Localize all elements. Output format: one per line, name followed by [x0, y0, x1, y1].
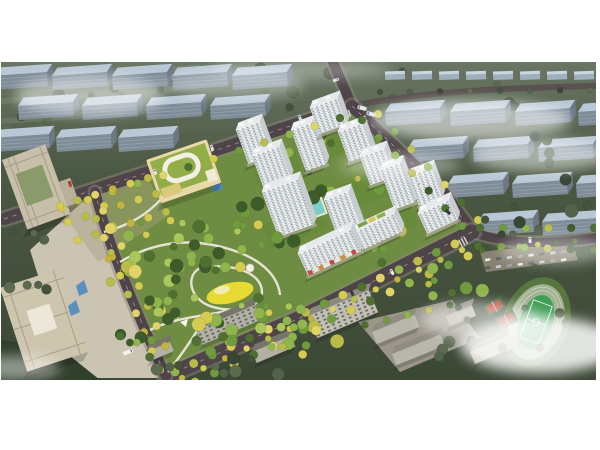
park-tree [297, 319, 307, 329]
context-house [466, 71, 486, 80]
street-tree [339, 291, 348, 300]
park-tree [287, 234, 300, 247]
park-tree [227, 335, 238, 346]
context-tree [151, 363, 163, 375]
park-tree [153, 307, 163, 317]
street-tree [265, 335, 271, 341]
context-building [55, 126, 117, 152]
street-tree [118, 242, 126, 250]
street-tree [362, 322, 369, 329]
park-tree [129, 251, 141, 263]
street-tree [179, 375, 185, 381]
street-tree [330, 306, 336, 312]
park-tree [212, 266, 220, 274]
context-tree [444, 336, 456, 348]
street-tree [92, 230, 100, 238]
park-tree [105, 223, 116, 234]
context-tree [166, 363, 175, 372]
street-tree [386, 288, 395, 297]
street-tree [432, 248, 441, 257]
park-tree [174, 233, 185, 244]
street-tree [395, 265, 404, 274]
context-house [574, 71, 594, 80]
street-tree [416, 267, 422, 273]
street-tree [84, 196, 92, 204]
street-tree [159, 171, 167, 179]
context-building [447, 172, 509, 198]
context-tree [534, 225, 543, 234]
park-tree [254, 308, 265, 319]
context-tree [211, 362, 219, 370]
street-tree [134, 180, 142, 188]
park-tree [145, 353, 154, 362]
context-tree [247, 356, 255, 364]
context-tree [31, 230, 38, 237]
street-tree [126, 180, 134, 188]
park-tree [285, 303, 292, 310]
park-tree [170, 259, 184, 273]
street-tree [405, 279, 414, 288]
master-plan-rendering [0, 0, 600, 450]
park-tree [378, 258, 387, 267]
street-tree [144, 174, 152, 182]
park-tree [263, 303, 270, 310]
context-house [412, 71, 432, 80]
park-tree [431, 277, 438, 284]
street-tree [74, 236, 82, 244]
park-tree [108, 249, 115, 256]
street-tree [351, 296, 357, 302]
street-tree [134, 196, 142, 204]
context-building [117, 126, 179, 152]
context-tree [555, 308, 565, 318]
park-tree [116, 332, 124, 340]
park-tree [218, 332, 227, 341]
street-tree [377, 89, 383, 95]
park-tree [116, 272, 124, 280]
street-tree [458, 222, 466, 230]
street-tree [413, 257, 422, 266]
park-tree [191, 294, 199, 302]
street-tree [56, 202, 64, 210]
park-tree [163, 297, 172, 306]
park-tree [137, 219, 144, 226]
street-tree [127, 219, 135, 227]
park-tree [129, 265, 142, 278]
context-tree [41, 284, 51, 294]
context-house [520, 71, 540, 80]
street-tree [451, 240, 460, 249]
street-tree [260, 139, 268, 147]
park-tree [268, 343, 276, 351]
context-tree [174, 361, 183, 370]
street-tree [567, 224, 575, 232]
park-tree [200, 256, 212, 268]
street-tree [441, 181, 449, 189]
street-tree [373, 286, 379, 292]
park-tree [427, 263, 438, 274]
street-tree [479, 247, 485, 253]
fog-cloud [210, 60, 390, 80]
context-house [493, 71, 513, 80]
context-tree [583, 201, 592, 210]
park-tree [170, 243, 177, 250]
park-tree [205, 346, 216, 357]
park-tree [105, 256, 112, 263]
street-tree [64, 218, 72, 226]
context-tree [509, 230, 516, 237]
street-tree [366, 297, 375, 306]
street-tree [394, 276, 400, 282]
street-tree [144, 214, 152, 222]
context-tree [565, 204, 579, 218]
park-tree [232, 220, 241, 229]
street-tree [376, 274, 385, 283]
street-tree [243, 345, 249, 351]
context-tree [272, 368, 285, 381]
context-house [385, 71, 405, 80]
context-house [547, 71, 567, 80]
street-tree [437, 257, 443, 263]
street-tree [357, 282, 366, 291]
park-tree [235, 262, 245, 272]
park-tree [279, 343, 286, 350]
park-tree [254, 220, 263, 229]
park-tree [277, 323, 286, 332]
park-tree [144, 296, 154, 306]
street-tree [587, 87, 593, 93]
street-tree [590, 224, 598, 232]
park-tree [133, 339, 140, 346]
context-building [0, 126, 56, 152]
street-tree [74, 196, 82, 204]
street-tree [286, 130, 294, 138]
context-tree [481, 216, 489, 224]
street-tree [375, 134, 383, 142]
park-tree [258, 241, 266, 249]
park-tree [192, 336, 202, 346]
context-side [596, 210, 600, 232]
park-tree [187, 251, 197, 261]
street-tree [358, 116, 366, 124]
context-tree [511, 203, 517, 209]
context-tree [498, 231, 506, 239]
context-tree [11, 229, 18, 236]
park-tree [123, 230, 134, 241]
fog-cloud [15, 75, 165, 115]
context-tree [220, 369, 229, 378]
park-tree [106, 277, 115, 286]
park-tree [144, 251, 155, 262]
context-tree [514, 216, 526, 228]
park-tree [126, 339, 134, 347]
street-tree [189, 359, 198, 368]
street-tree [457, 198, 465, 206]
street-tree [91, 191, 99, 199]
street-tree [109, 185, 117, 193]
street-tree [99, 207, 107, 215]
street-tree [320, 299, 329, 308]
street-tree [153, 322, 161, 330]
park-tree [239, 303, 245, 309]
park-tree [330, 334, 344, 348]
park-tree [189, 240, 200, 251]
street-tree [474, 216, 482, 224]
park-tree [296, 304, 306, 314]
street-tree [311, 122, 319, 130]
context-tree [23, 281, 32, 290]
street-tree [557, 87, 563, 93]
street-tree [459, 247, 465, 253]
street-tree [117, 201, 125, 209]
park-tree [253, 293, 263, 303]
context-tree [560, 174, 572, 186]
park-tree [355, 176, 361, 182]
street-tree [467, 88, 473, 94]
fog-cloud [370, 100, 570, 140]
street-tree [135, 282, 143, 290]
park-tree [236, 201, 247, 212]
street-tree [245, 333, 254, 342]
street-tree [336, 114, 344, 122]
park-tree [220, 262, 230, 272]
park-tree [255, 323, 266, 334]
street-tree [476, 224, 484, 232]
context-tree [229, 365, 241, 377]
street-tree [92, 215, 100, 223]
park-tree [266, 309, 273, 316]
street-tree [210, 155, 218, 163]
park-tree [213, 247, 225, 259]
street-tree [425, 187, 433, 195]
park-tree [271, 231, 284, 244]
park-tree [193, 220, 206, 233]
street-tree [327, 315, 336, 324]
park-tree [476, 284, 489, 297]
street-tree [184, 163, 192, 171]
park-tree [302, 341, 311, 350]
park-tree [143, 231, 150, 238]
street-tree [191, 378, 200, 387]
context-tree [34, 281, 42, 289]
street-tree [152, 190, 160, 198]
rendering-canvas [0, 0, 600, 450]
street-tree [527, 88, 533, 94]
street-tree [161, 342, 169, 350]
park-tree [327, 139, 335, 147]
park-tree [192, 317, 206, 331]
street-tree [100, 234, 108, 242]
context-tree [434, 352, 444, 362]
context-tree [39, 235, 49, 245]
park-tree [428, 291, 437, 300]
park-tree [448, 289, 456, 297]
street-tree [347, 306, 356, 315]
street-tree [464, 252, 473, 261]
park-tree [225, 324, 238, 337]
park-tree [167, 217, 175, 225]
context-tree [4, 282, 15, 293]
park-tree [290, 323, 298, 331]
fog-cloud [340, 153, 460, 177]
park-tree [171, 275, 181, 285]
context-tree [531, 264, 540, 273]
park-pavilion [246, 264, 254, 272]
context-house [439, 71, 459, 80]
render-area [0, 60, 600, 387]
park-tree [311, 326, 321, 336]
context-tree [227, 352, 239, 364]
street-tree [162, 208, 170, 216]
street-tree [235, 147, 243, 155]
street-tree [407, 145, 415, 153]
street-tree [383, 317, 390, 324]
park-tree [162, 313, 174, 325]
street-tree [437, 88, 443, 94]
street-tree [404, 312, 411, 319]
park-tree [460, 282, 473, 295]
park-tree [237, 245, 246, 254]
street-tree [497, 88, 503, 94]
street-tree [200, 365, 206, 371]
park-tree [148, 336, 157, 345]
street-tree [407, 89, 413, 95]
street-tree [82, 212, 90, 220]
street-tree [132, 309, 140, 317]
street-tree [444, 261, 453, 270]
street-tree [544, 224, 552, 232]
context-tree [286, 103, 294, 111]
park-tree [251, 197, 265, 211]
park-tree [179, 220, 186, 227]
park-tree [204, 233, 214, 243]
park-tree [298, 350, 307, 359]
street-tree [124, 290, 132, 298]
